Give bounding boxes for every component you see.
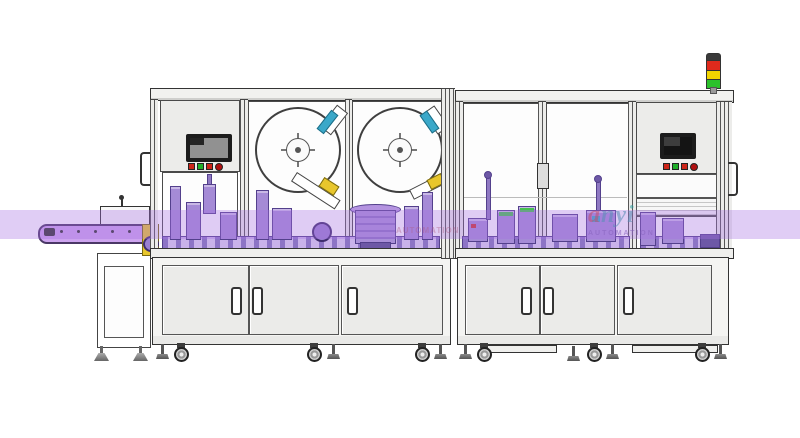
station (662, 218, 684, 244)
sub-panel-right (636, 174, 718, 198)
hmi-screen-right (660, 133, 696, 159)
machine-right-door-handle-side (728, 162, 738, 196)
button-green (672, 163, 679, 170)
leveling-foot (458, 344, 474, 362)
station (468, 218, 488, 242)
hmi-buttons-right (663, 163, 697, 170)
window-latch (537, 163, 549, 189)
rod-knob (484, 171, 492, 179)
caster-wheel (476, 343, 492, 361)
station-clamp (518, 206, 536, 244)
watermark-brand-rest: nyi (601, 202, 635, 228)
door-handle (521, 287, 532, 315)
end-unit (700, 234, 720, 248)
station (552, 214, 578, 242)
door-handle (543, 287, 554, 315)
leveling-foot (566, 346, 582, 364)
caster-wheel (586, 343, 602, 361)
hmi-screen-right-display (664, 137, 692, 155)
station (640, 212, 656, 246)
watermark-brand: anyi (588, 202, 635, 229)
door-handle (623, 287, 634, 315)
leveling-foot (605, 344, 621, 362)
rod-knob (594, 175, 602, 183)
watermark-subtext: AUTOMATION (588, 230, 655, 237)
signal-tower (700, 45, 730, 95)
machine-right (0, 0, 800, 438)
machine-line-drawing: AUTOMATION anyi AUTOMATION (0, 0, 800, 438)
button-emergency-stop (690, 163, 698, 171)
leveling-foot (713, 344, 729, 362)
button-red (681, 163, 688, 170)
caster-wheel (694, 343, 710, 361)
button-red (663, 163, 670, 170)
pallet-rail (485, 345, 557, 353)
station-red-chip (471, 224, 476, 228)
station-rod (486, 176, 491, 220)
watermark-brand-a: a (588, 202, 601, 228)
watermark-ghost: AUTOMATION (396, 226, 459, 235)
station-clamp (497, 210, 515, 244)
tower-pole (710, 87, 717, 94)
